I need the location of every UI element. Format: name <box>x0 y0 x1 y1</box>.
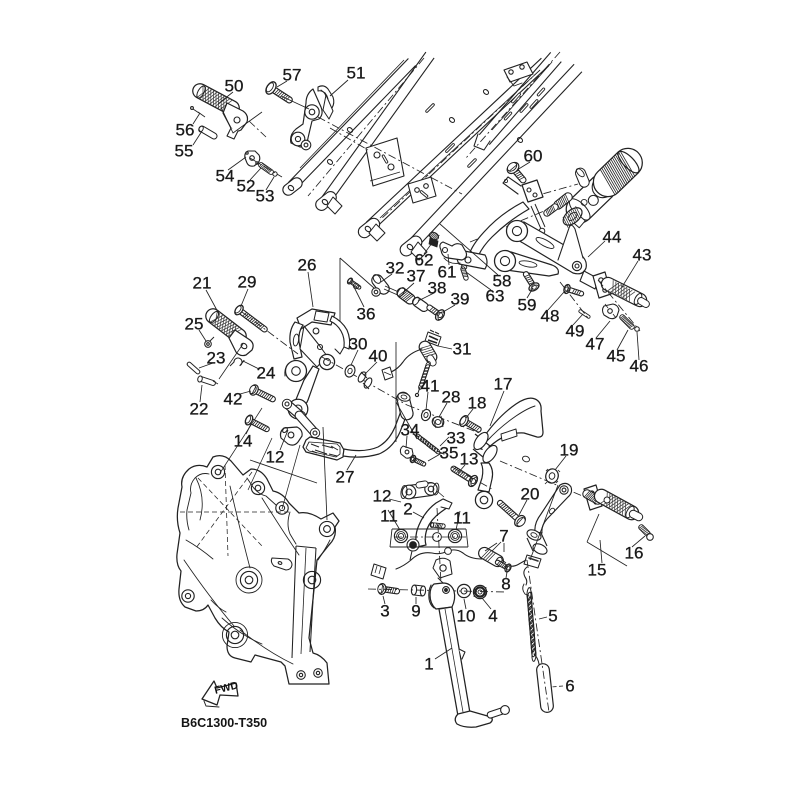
svg-text:3: 3 <box>380 602 389 621</box>
svg-text:61: 61 <box>438 263 457 282</box>
svg-text:32: 32 <box>386 259 405 278</box>
svg-text:57: 57 <box>283 66 302 85</box>
svg-text:50: 50 <box>225 77 244 96</box>
svg-text:12: 12 <box>266 448 285 467</box>
svg-text:48: 48 <box>541 307 560 326</box>
svg-text:17: 17 <box>494 375 513 394</box>
svg-text:24: 24 <box>257 364 276 383</box>
svg-text:41: 41 <box>421 377 440 396</box>
svg-text:52: 52 <box>237 177 256 196</box>
svg-text:15: 15 <box>588 561 607 580</box>
svg-text:13: 13 <box>460 450 479 469</box>
svg-text:11: 11 <box>380 507 398 526</box>
svg-text:7: 7 <box>499 527 508 546</box>
svg-text:62: 62 <box>415 251 434 270</box>
svg-text:B6C1300-T350: B6C1300-T350 <box>181 716 267 730</box>
svg-text:22: 22 <box>190 400 209 419</box>
svg-text:25: 25 <box>185 315 204 334</box>
svg-text:40: 40 <box>369 347 388 366</box>
svg-text:21: 21 <box>193 274 212 293</box>
svg-text:19: 19 <box>560 441 579 460</box>
svg-text:20: 20 <box>521 485 540 504</box>
svg-text:18: 18 <box>468 394 487 413</box>
svg-text:44: 44 <box>603 228 622 247</box>
svg-text:28: 28 <box>442 388 461 407</box>
svg-text:30: 30 <box>349 335 368 354</box>
svg-text:14: 14 <box>234 432 253 451</box>
svg-text:2: 2 <box>403 500 412 519</box>
svg-text:23: 23 <box>207 349 226 368</box>
svg-text:9: 9 <box>411 602 420 621</box>
svg-text:26: 26 <box>298 256 317 275</box>
svg-text:51: 51 <box>347 64 366 83</box>
svg-text:5: 5 <box>548 607 557 626</box>
svg-text:45: 45 <box>607 347 626 366</box>
svg-text:35: 35 <box>440 444 459 463</box>
svg-text:53: 53 <box>256 187 275 206</box>
svg-text:55: 55 <box>175 142 194 161</box>
svg-text:8: 8 <box>501 575 510 594</box>
svg-text:56: 56 <box>176 121 195 140</box>
svg-text:4: 4 <box>488 607 497 626</box>
svg-text:43: 43 <box>633 246 652 265</box>
svg-text:1: 1 <box>424 655 433 674</box>
svg-text:63: 63 <box>486 287 505 306</box>
svg-text:47: 47 <box>586 335 605 354</box>
svg-text:11: 11 <box>453 509 471 528</box>
svg-text:12: 12 <box>373 487 392 506</box>
svg-text:46: 46 <box>630 357 649 376</box>
svg-text:10: 10 <box>457 607 476 626</box>
svg-text:27: 27 <box>336 468 355 487</box>
svg-text:29: 29 <box>238 273 257 292</box>
svg-text:39: 39 <box>451 290 470 309</box>
svg-text:16: 16 <box>625 544 644 563</box>
svg-text:36: 36 <box>357 305 376 324</box>
svg-text:34: 34 <box>401 421 420 440</box>
svg-text:60: 60 <box>524 147 543 166</box>
svg-text:31: 31 <box>453 340 472 359</box>
svg-text:49: 49 <box>566 322 585 341</box>
svg-text:54: 54 <box>216 167 235 186</box>
svg-text:6: 6 <box>565 677 574 696</box>
svg-text:42: 42 <box>224 390 243 409</box>
svg-text:59: 59 <box>518 296 537 315</box>
